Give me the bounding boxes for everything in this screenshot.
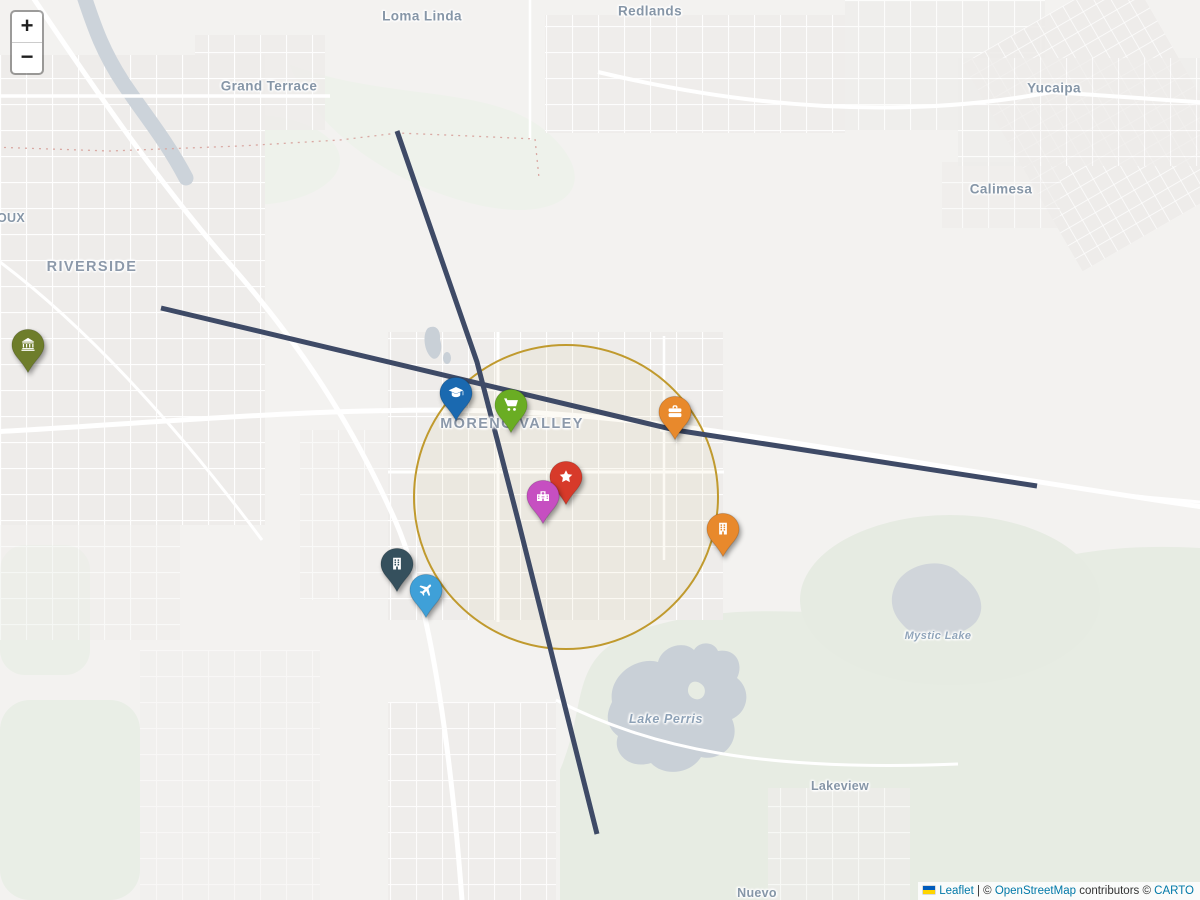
business-marker[interactable] <box>657 395 693 441</box>
zoom-in-button[interactable]: + <box>12 12 42 43</box>
pin-body <box>440 377 472 420</box>
zoom-out-button[interactable]: − <box>12 43 42 73</box>
pin-body <box>659 396 691 439</box>
pin-body <box>12 329 44 372</box>
attribution-contributors: contributors © <box>1076 885 1154 897</box>
airport-marker[interactable] <box>408 573 444 619</box>
zoom-control: + − <box>10 10 44 75</box>
pin-body <box>527 480 559 523</box>
company-marker[interactable] <box>705 512 741 558</box>
ukraine-flag-icon <box>923 886 935 894</box>
attribution-separator: | © <box>974 885 995 897</box>
grocery-marker[interactable] <box>493 388 529 434</box>
map-canvas[interactable]: Loma LindaRedlandsGrand TerraceYucaipaCa… <box>0 0 1200 900</box>
pin-body <box>410 574 442 617</box>
pin-body <box>707 513 739 556</box>
carto-link[interactable]: CARTO <box>1154 885 1194 897</box>
university-marker[interactable] <box>438 376 474 422</box>
pin-body <box>495 389 527 432</box>
openstreetmap-link[interactable]: OpenStreetMap <box>995 885 1076 897</box>
hospital-marker[interactable] <box>525 479 561 525</box>
bank-marker[interactable] <box>10 328 46 374</box>
attribution-bar: Leaflet | © OpenStreetMap contributors ©… <box>918 882 1200 900</box>
leaflet-link[interactable]: Leaflet <box>939 885 974 897</box>
map-overlays <box>0 0 1200 900</box>
